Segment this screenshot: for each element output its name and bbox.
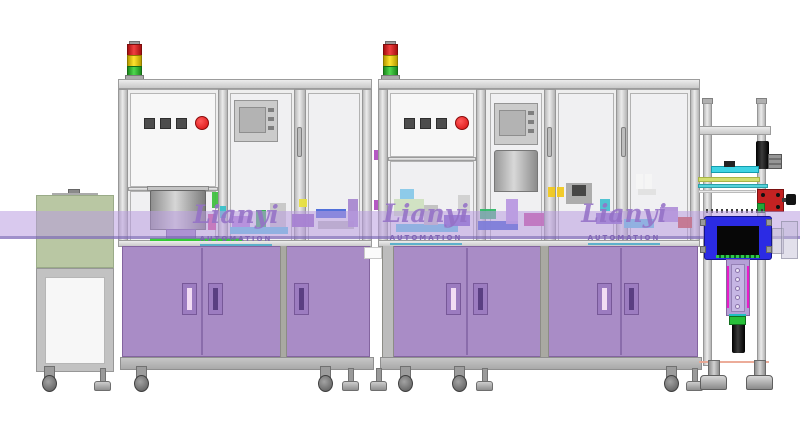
m1-cabinet (122, 246, 370, 357)
handle-slot (213, 288, 218, 310)
motor-gearbox (768, 154, 782, 169)
cabinet-door-handle (208, 283, 223, 315)
actuator-hole (735, 277, 740, 282)
cabinet-door-handle (294, 283, 309, 315)
m1-control-panel (130, 93, 216, 187)
m2-door-handle (547, 127, 552, 157)
linear-rail-white (698, 190, 756, 193)
m1-button-row (144, 116, 209, 130)
side-glass-pane (781, 221, 798, 259)
actuator-bolt (776, 205, 780, 209)
emergency-stop-button (455, 116, 469, 130)
handle-slot (602, 288, 607, 310)
emergency-stop-button (195, 116, 209, 130)
cabinet-door-handle (446, 283, 461, 315)
blue-module-opening (717, 226, 759, 255)
cabinet-door-handle (473, 283, 488, 315)
m1-hmi-keys (268, 108, 274, 134)
knob-stem (782, 198, 786, 202)
m1-top-beam (118, 79, 372, 89)
m2-door-handle (621, 127, 626, 157)
actuator-edge-magenta (747, 266, 749, 308)
m1-hmi-screen (239, 107, 266, 133)
station-top-beam (699, 126, 771, 135)
panel-button (160, 118, 171, 129)
actuator-bolt (761, 193, 765, 197)
inter-machine-box (364, 247, 382, 259)
machine-foot-leveler (476, 368, 492, 392)
m1-door-handle (297, 127, 302, 157)
m2-control-panel (390, 93, 474, 157)
m1-hmi-panel (234, 100, 278, 142)
conveyor-band (0, 211, 800, 239)
m2-top-beam (378, 79, 700, 89)
actuator-hole (735, 295, 740, 300)
m2-cabinet-sidepanel (382, 246, 394, 357)
actuator-bolt (776, 193, 780, 197)
blue-module-tab (700, 219, 706, 226)
panel-button (144, 118, 155, 129)
gantry-block (724, 161, 735, 167)
handle-slot (451, 288, 456, 310)
handle-slot (478, 288, 483, 310)
m2-base-rail (380, 357, 702, 370)
panel-button (404, 118, 415, 129)
actuator-edge-magenta (727, 266, 729, 308)
gantry-plate (711, 166, 759, 173)
handle-slot (187, 288, 192, 310)
machine-foot-leveler (686, 368, 702, 392)
actuator-hole (735, 286, 740, 291)
m2-hmi-screen (499, 110, 526, 136)
linear-rail-yellow (698, 177, 760, 182)
panel-button (436, 118, 447, 129)
actuator-hole (735, 268, 740, 273)
cabinet-door-handle (182, 283, 197, 315)
m1-door-seam (201, 248, 203, 355)
blue-module-led-strip (716, 255, 760, 258)
handle-slot (629, 288, 634, 310)
machine-line-render: Lianyi AUTOMATION Lianyi AUTOMATION Lian… (0, 0, 800, 438)
conveyor-band-edge (0, 236, 800, 239)
m2-hmi-panel (494, 103, 538, 145)
m2-inner-drum (494, 150, 538, 192)
blue-module-tab (766, 219, 772, 226)
machine-foot-leveler (370, 368, 386, 392)
actuator-hole (735, 304, 740, 309)
m2-cabinet-divider (540, 246, 549, 357)
infeed-cabinet-panel (45, 277, 105, 364)
panel-button (176, 118, 187, 129)
camera-lens-cylinder (732, 325, 745, 353)
machine-foot-leveler (342, 368, 358, 392)
cabinet-door-handle (624, 283, 639, 315)
m1-base-rail (120, 357, 374, 370)
cabinet-door-handle (597, 283, 612, 315)
blue-module-tab (700, 246, 706, 253)
panel-button (420, 118, 431, 129)
linear-rail-cyan (698, 184, 768, 188)
m2-button-row (404, 116, 469, 130)
hand-knob (786, 194, 796, 205)
m2-door-seam (466, 248, 468, 355)
m2-hmi-keys (528, 111, 534, 137)
handle-slot (299, 288, 304, 310)
m1-cabinet-divider (280, 246, 287, 357)
m2-door-seam (620, 248, 622, 355)
camera-mount-green (729, 316, 746, 325)
